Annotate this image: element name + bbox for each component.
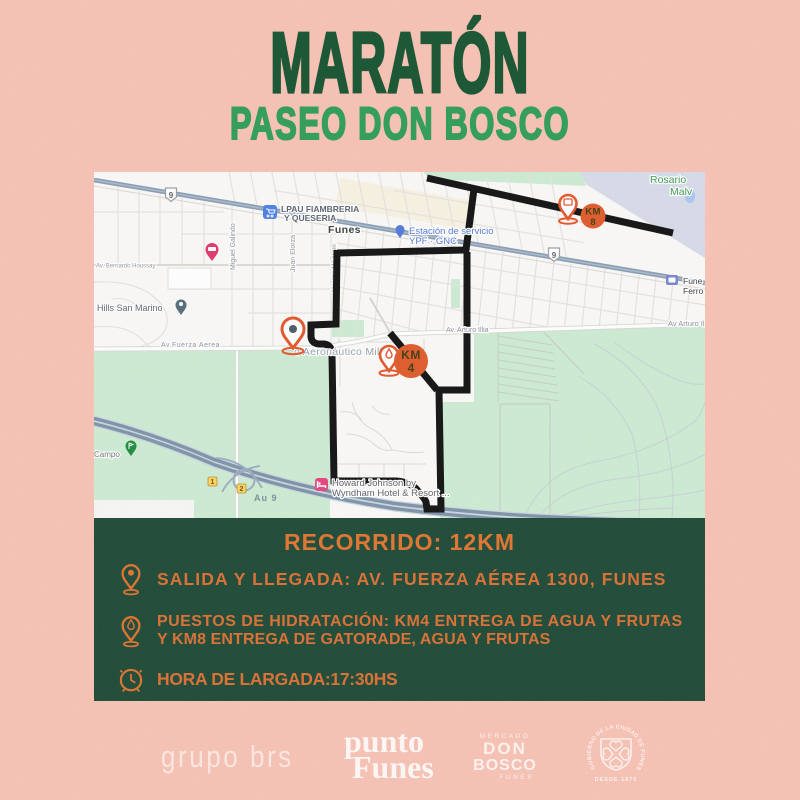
svg-text:Funes: Funes xyxy=(328,224,361,236)
svg-text:Ferro: Ferro xyxy=(683,286,704,296)
svg-text:Av.Fuerza Aerea: Av.Fuerza Aerea xyxy=(161,342,220,349)
svg-text:YPF · GNC: YPF · GNC xyxy=(409,236,457,247)
svg-text:Hills San Marino: Hills San Marino xyxy=(97,303,163,313)
svg-text:GOBIERNO DE LA CIUDAD DE FUNES: GOBIERNO DE LA CIUDAD DE FUNES xyxy=(587,724,646,771)
svg-text:4: 4 xyxy=(408,361,415,375)
svg-text:Av. Bernardo Houssay: Av. Bernardo Houssay xyxy=(96,264,155,270)
svg-text:Au 9: Au 9 xyxy=(254,493,278,503)
svg-text:2: 2 xyxy=(240,486,244,493)
svg-text:8: 8 xyxy=(590,217,595,228)
svg-text:9: 9 xyxy=(552,251,557,260)
svg-text:Juan Elorza: Juan Elorza xyxy=(290,235,297,272)
svg-text:Campo: Campo xyxy=(94,450,120,459)
svg-text:Malv: Malv xyxy=(670,186,693,198)
svg-text:KM: KM xyxy=(585,207,601,218)
svg-text:1: 1 xyxy=(211,479,215,486)
svg-text:9: 9 xyxy=(169,191,174,200)
svg-text:Fune: Fune xyxy=(683,276,703,286)
svg-text:Miguel Galindo: Miguel Galindo xyxy=(230,223,237,270)
svg-text:Av Arturo Illi: Av Arturo Illi xyxy=(668,319,705,328)
svg-text:Wyndham Hotel & Resort ...: Wyndham Hotel & Resort ... xyxy=(332,488,450,499)
svg-text:DESDE 1875: DESDE 1875 xyxy=(595,777,638,783)
svg-text:KM: KM xyxy=(401,348,421,362)
svg-text:Y QUESERIA: Y QUESERIA xyxy=(284,213,336,223)
svg-text:Av. Arturo Illia: Av. Arturo Illia xyxy=(446,327,489,334)
svg-text:Rosario: Rosario xyxy=(650,174,686,186)
